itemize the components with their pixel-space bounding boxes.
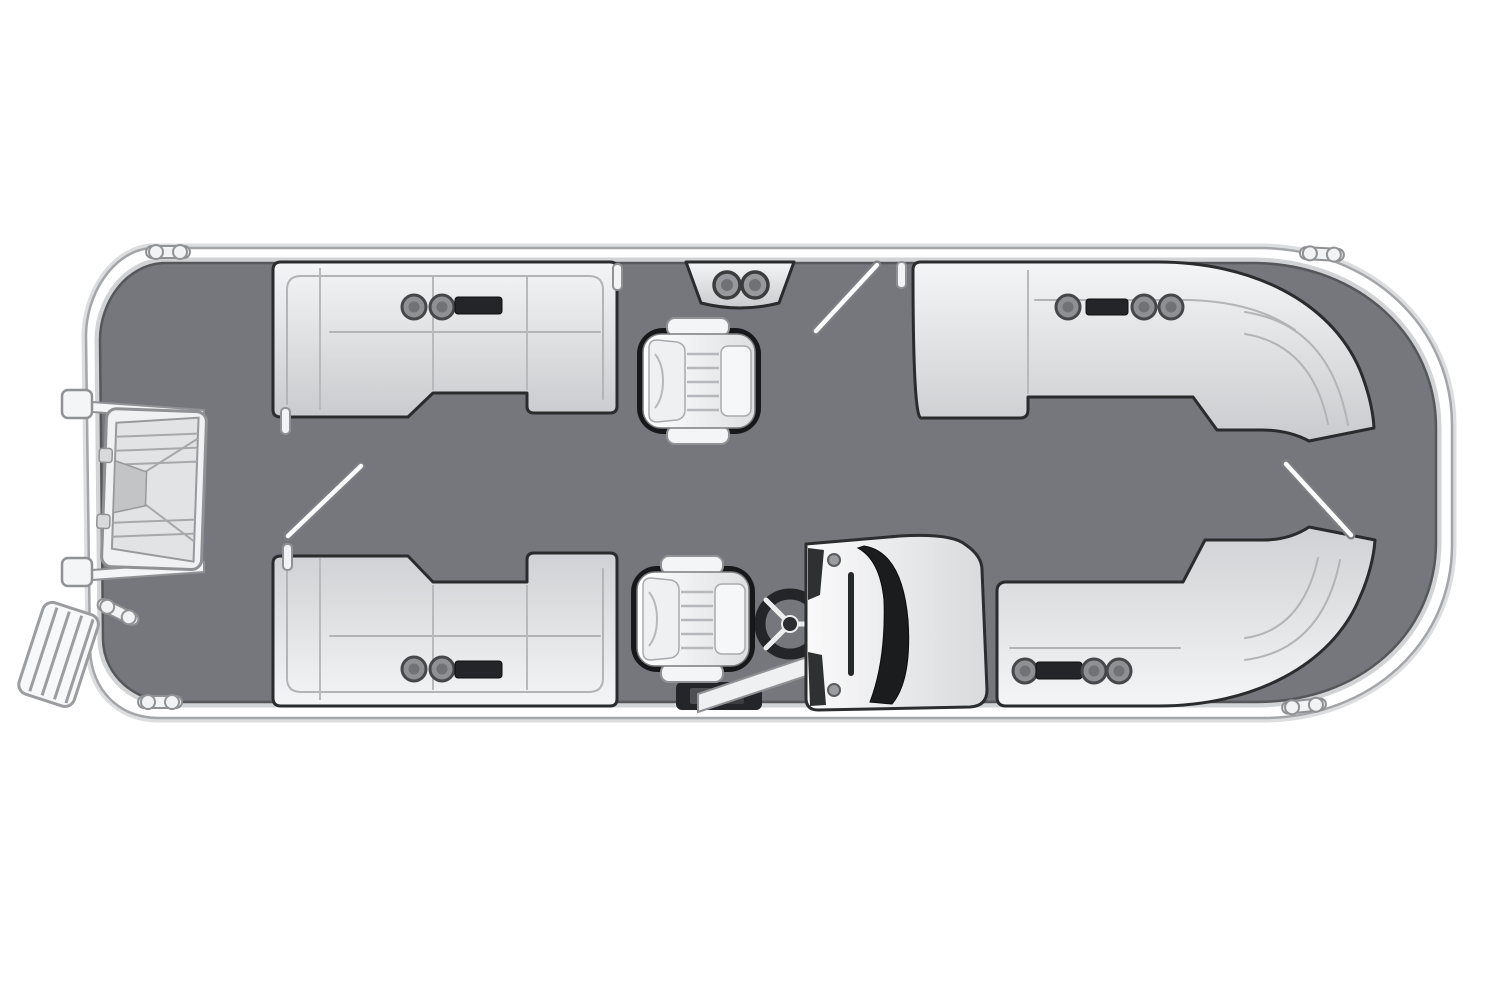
storage-tray	[455, 297, 502, 314]
stern-rail-post-bottom	[62, 558, 92, 586]
gate-post	[613, 264, 622, 290]
console-screw	[828, 684, 840, 696]
storage-tray	[1086, 299, 1128, 315]
companion-chair	[637, 318, 761, 444]
cupholder	[1159, 295, 1183, 319]
cupholder	[402, 657, 426, 681]
console-screw	[828, 554, 840, 566]
cupholder	[1132, 295, 1156, 319]
gate-post	[281, 408, 290, 434]
wheel-hub	[782, 616, 798, 632]
storage-tray	[455, 661, 502, 678]
aft-lounge-port	[273, 262, 617, 417]
cupholder	[1082, 659, 1106, 683]
cleat-bottom-left	[138, 695, 182, 709]
storage-tray	[1036, 662, 1082, 679]
helm-chair	[631, 556, 755, 682]
gate-post	[283, 544, 292, 570]
stern-rail-post-top	[62, 390, 92, 418]
cleat-top-right	[1300, 246, 1345, 262]
stern-steps	[95, 408, 206, 570]
pontoon-floorplan-page	[0, 0, 1500, 1000]
cupholder	[402, 295, 426, 319]
refreshment-console	[686, 262, 794, 308]
cupholder	[430, 295, 454, 319]
cupholder	[1013, 659, 1037, 683]
cupholder	[430, 657, 454, 681]
cleat-top-left	[146, 245, 190, 259]
gate-post	[897, 262, 906, 288]
cupholder	[1107, 659, 1131, 683]
helm-console	[806, 535, 987, 710]
pontoon-floorplan-diagram	[0, 0, 1500, 1000]
console-slot	[848, 572, 854, 676]
cupholder	[1056, 295, 1080, 319]
